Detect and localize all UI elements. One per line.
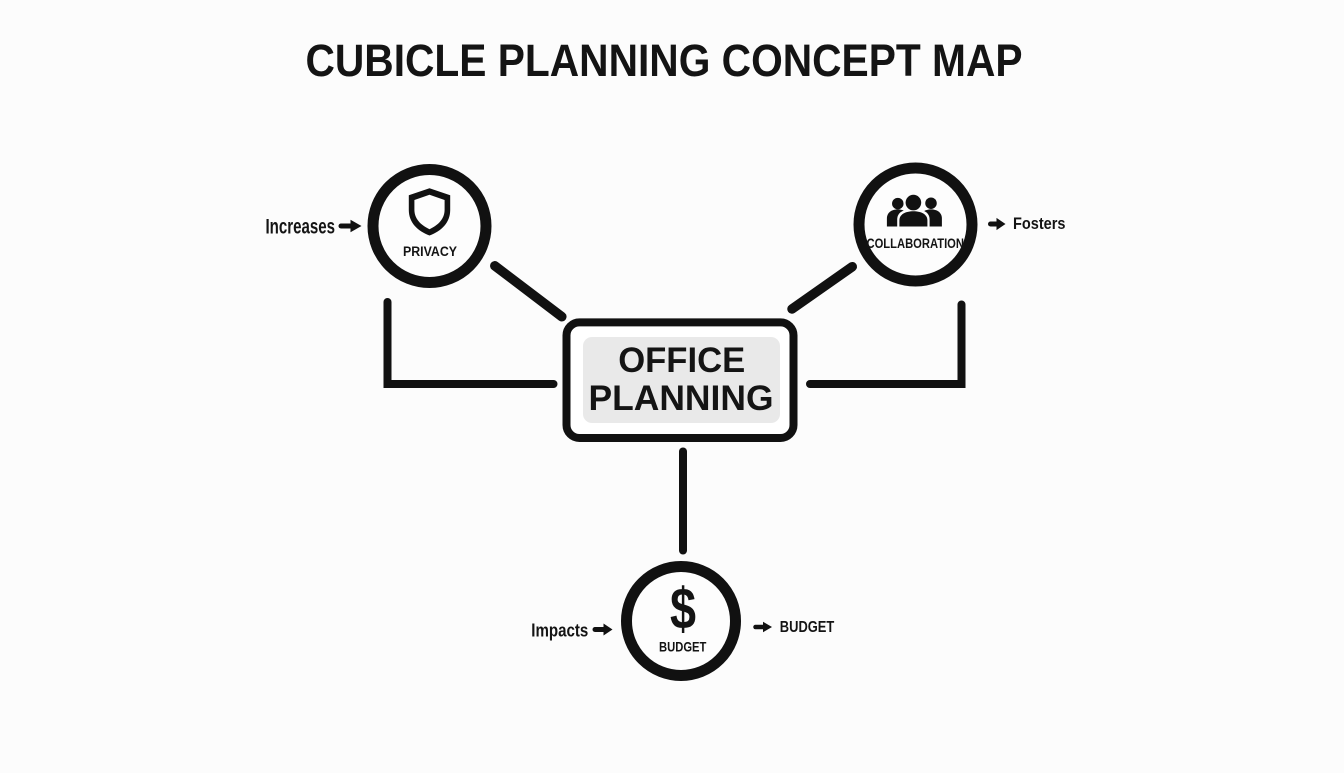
svg-text:PLANNING: PLANNING — [589, 379, 774, 418]
svg-text:Fosters: Fosters — [1013, 215, 1066, 233]
svg-text:BUDGET: BUDGET — [659, 639, 707, 655]
svg-text:Increases: Increases — [266, 213, 336, 238]
svg-text:CUBICLE PLANNING CONCEPT MAP: CUBICLE PLANNING CONCEPT MAP — [306, 35, 1023, 86]
svg-text:OFFICE: OFFICE — [618, 341, 745, 380]
svg-text:Impacts: Impacts — [531, 620, 588, 640]
svg-text:PRIVACY: PRIVACY — [403, 244, 457, 259]
svg-text:$: $ — [670, 577, 696, 642]
svg-text:BUDGET: BUDGET — [780, 619, 835, 636]
svg-text:COLLABORATION: COLLABORATION — [867, 236, 965, 251]
